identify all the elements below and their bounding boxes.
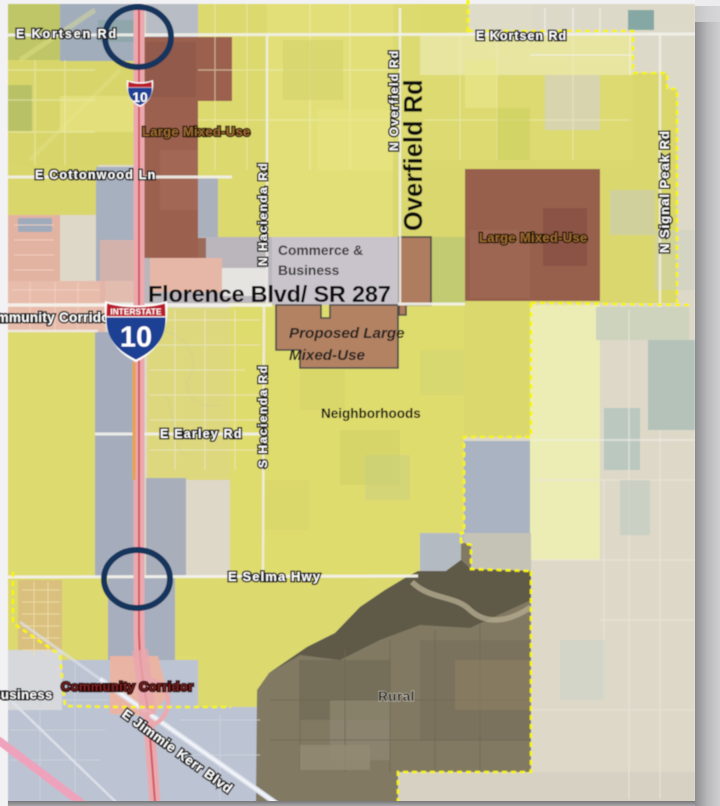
svg-text:Mixed-Use: Mixed-Use — [289, 347, 366, 364]
svg-text:Proposed Large: Proposed Large — [289, 325, 405, 342]
svg-text:Business: Business — [278, 263, 340, 278]
svg-text:INTERSTATE: INTERSTATE — [110, 307, 162, 316]
svg-text:Rural: Rural — [378, 689, 415, 704]
svg-text:Community Corridor: Community Corridor — [0, 310, 116, 325]
svg-text:10: 10 — [132, 89, 148, 105]
svg-text:S Hacienda Rd: S Hacienda Rd — [256, 364, 270, 468]
svg-text:E Kortsen Rd: E Kortsen Rd — [476, 29, 567, 43]
svg-text:E Earley Rd: E Earley Rd — [160, 427, 243, 441]
svg-text:Neighborhoods: Neighborhoods — [321, 406, 421, 421]
svg-text:Business: Business — [0, 687, 53, 702]
svg-text:E Cottonwood Ln: E Cottonwood Ln — [35, 168, 156, 182]
svg-text:Commerce &: Commerce & — [278, 243, 363, 258]
svg-text:E Selma Hwy: E Selma Hwy — [228, 569, 321, 584]
svg-text:10: 10 — [120, 322, 152, 354]
svg-text:Large Mixed-Use: Large Mixed-Use — [479, 230, 588, 245]
svg-text:Large Mixed-Use: Large Mixed-Use — [142, 124, 251, 139]
svg-text:Florence Blvd/ SR 287: Florence Blvd/ SR 287 — [148, 281, 391, 307]
svg-text:Community Corridor: Community Corridor — [61, 679, 194, 694]
svg-text:N Signal Peak Rd: N Signal Peak Rd — [657, 130, 672, 253]
svg-text:Overfield Rd: Overfield Rd — [400, 79, 428, 231]
svg-text:N Overfield Rd: N Overfield Rd — [387, 49, 401, 151]
svg-text:N Hacienda Rd: N Hacienda Rd — [256, 162, 270, 266]
svg-text:E Kortsen Rd: E Kortsen Rd — [16, 27, 118, 41]
